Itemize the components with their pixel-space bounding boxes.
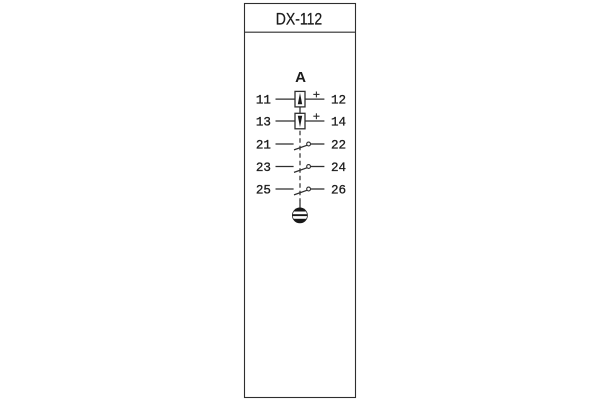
svg-text:26: 26 [331,183,346,197]
svg-text:11: 11 [256,94,271,108]
svg-text:22: 22 [331,138,346,152]
svg-text:24: 24 [331,161,346,175]
svg-text:DX-112: DX-112 [276,11,322,29]
svg-text:25: 25 [256,183,271,197]
svg-text:21: 21 [256,138,271,152]
svg-text:13: 13 [256,115,271,129]
svg-text:23: 23 [256,161,271,175]
svg-text:12: 12 [331,94,346,108]
svg-text:A: A [295,69,306,86]
svg-text:14: 14 [331,115,346,129]
